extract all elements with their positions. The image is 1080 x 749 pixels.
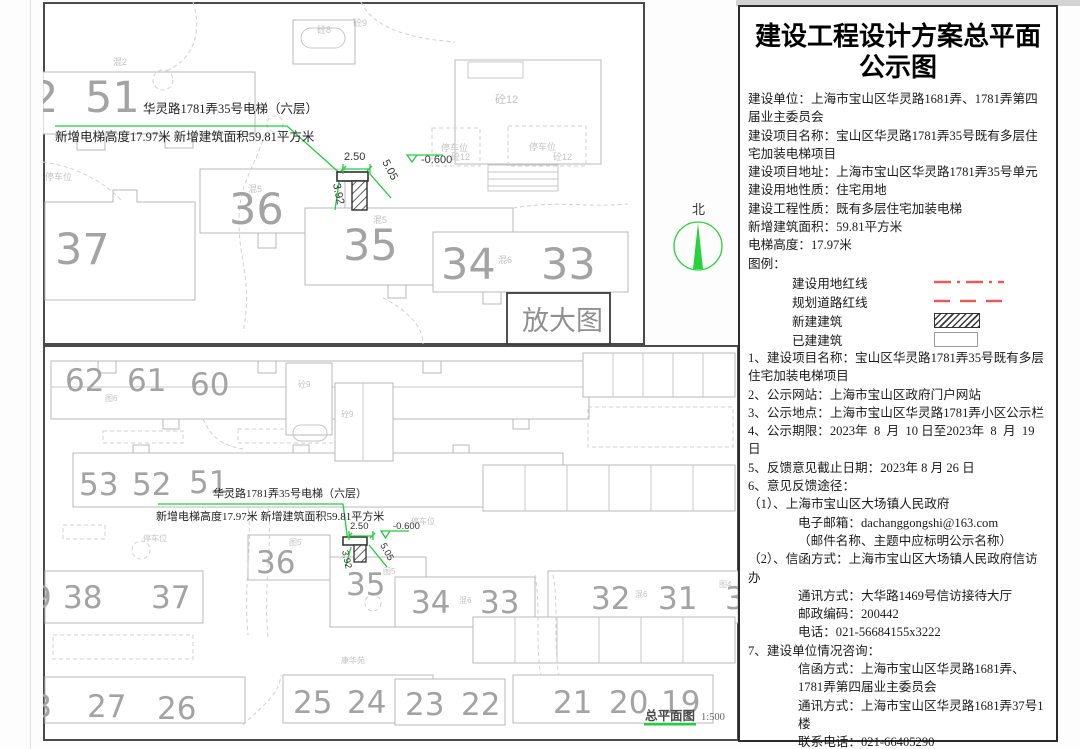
structure-label: 混6 [498,255,512,265]
panel-field-line: 建设用地性质：住宅用地 [748,181,1048,199]
structure-label: 砼9 [353,17,367,28]
building-number: 34 [411,585,450,621]
structure-label: 混2 [113,57,127,67]
panel-note-line: （2）、信函方式：上海市宝山区大场镇人民政府信访办 [748,550,1048,587]
page-title-line2: 公示图 [859,53,937,82]
legend-swatch-road-redline [934,297,1004,305]
panel-note-line: 3、公示地点：上海市宝山区华灵路1781弄小区公示栏 [748,404,1048,422]
annotation-title: 华灵路1781弄35号电梯（六层） [213,486,367,500]
panel-note-line: 4、公示期限：2023年 8 月 10 日至2023年 8 月 19 日 [748,422,1048,459]
panel-note-line: 5、反馈意见截止日期：2023年 8 月 26 日 [748,459,1048,477]
building-number: 61 [127,363,166,399]
building-number: 9 [43,580,52,616]
building-number: 38 [63,580,102,616]
building-number: 37 [55,225,110,275]
legend-row-road-redline: 规划道路红线 [748,292,1048,311]
structure-label: 停车位 [143,533,167,543]
building-number: 2 [43,73,58,123]
panel-field-line: 新增建筑面积：59.81平方米 [748,218,1048,236]
structure-label: 混5 [248,184,262,194]
map-title: 放大图 [522,306,603,336]
building-number: 26 [157,691,196,727]
building-number: 23 [405,687,444,723]
legend-label: 新建建筑 [792,311,900,330]
panel-note-line: （邮件名称、主题中应标明公示名称） [748,532,1048,550]
panel-note-line: 2、公示网站：上海市宝山区政府门户网站 [748,386,1048,404]
elevator-shaft-new [354,545,366,562]
building-number: 32 [591,581,630,617]
map-scale: 1:500 [701,712,725,723]
structure-label: 混5 [373,215,387,225]
annotation-detail: 新增电梯高度17.97米 新增建筑面积59.81平方米 [55,129,315,144]
structure-label: 图4 [719,580,732,589]
building-number: 24 [347,685,386,721]
structure-label: 停车位 [45,171,72,182]
panel-field-line: 建设单位：上海市宝山区华灵路1681弄、1781弄第四届业主委员会 [748,90,1048,127]
elevator-landing [343,537,367,545]
structure-label: 图6 [105,394,118,403]
panel-note-line: 通讯方式：大华路1469号信访接待大厅 [748,587,1048,605]
structure-label: 砼12 [553,151,572,162]
building-number: 33 [480,585,519,621]
panel-note-line: 7、建设单位情况咨询： [748,642,1048,660]
building-number: 34 [441,240,496,290]
building-number: 33 [541,240,596,290]
building-number: 27 [87,689,126,725]
building-number: 20 [609,685,648,721]
building-number: 37 [151,580,190,616]
annotation-title: 华灵路1781弄35号电梯（六层） [143,101,318,116]
structure-label: 图5 [383,567,396,576]
map-title-underline [644,723,696,726]
legend-swatch-land-redline [934,278,1004,286]
structure-label: 砼9 [298,379,311,389]
building-number: 31 [658,581,697,617]
building-number: 8 [43,689,52,725]
panel-field-line: 建设项目名称：宝山区华灵路1781弄35号既有多层住宅加装电梯项目 [748,127,1048,164]
building-number: 36 [256,545,295,581]
panel-note-line: 信函方式：上海市宝山区华灵路1681弄、1781弄第四届业主委员会 [748,660,1048,697]
structure-label: 停车位 [529,141,556,152]
panel-note-line: 邮政编码：200442 [748,605,1048,623]
building-number: 51 [85,73,140,123]
structure-label: 砼12 [495,93,518,106]
elevator-landing [337,172,368,181]
building-number: 35 [343,221,398,271]
structure-label: 混6 [635,590,648,599]
building-number: 52 [132,467,171,503]
building-number: 25 [293,685,332,721]
building-number: 53 [79,467,118,503]
panel-field-line: 电梯高度：17.97米 [748,236,1048,254]
legend-row-land-redline: 建设用地红线 [748,273,1048,292]
scan-margin-line [30,0,31,749]
notice-page: 2 51 36 37 35 34 33 混2 砼8 砼9 砼12 砼12 砼12… [0,0,1080,749]
panel-field-line: 建设工程性质：既有多层住宅加装电梯 [748,200,1048,218]
page-title-line1: 建设工程设计方案总平面 [755,22,1041,51]
structure-label: 砼8 [317,24,331,35]
north-arrow: 北 [666,198,730,278]
legend-swatch-existing-building [934,332,978,347]
elevator-shaft-new [352,181,367,210]
structure-label: 康华苑 [341,655,365,665]
north-needle [693,223,703,269]
level-text: -0.600 [421,154,452,166]
building-number: 22 [461,687,500,723]
structure-label: 砼9 [341,409,354,419]
legend-swatch-new-building [934,313,980,328]
legend-row-new-building: 新建建筑 [748,311,1048,330]
panel-field-line: 建设项目地址：上海市宝山区华灵路1781弄35号单元 [748,163,1048,181]
north-label: 北 [692,202,705,217]
enlarged-plan-map: 2 51 36 37 35 34 33 混2 砼8 砼9 砼12 砼12 砼12… [43,2,645,345]
building-number: 35 [346,567,385,603]
legend-label: 规划道路红线 [792,292,900,311]
panel-note-line: 1、建设项目名称：宝山区华灵路1781弄35号既有多层住宅加装电梯项目 [748,349,1048,386]
map-title: 总平面图 [645,708,695,723]
panel-note-line: 联系电话：021-66405290 [748,733,1048,749]
panel-note-line: 电话：021-56684155x3222 [748,623,1048,641]
notice-panel: 建设工程设计方案总平面公示图 建设单位：上海市宝山区华灵路1681弄、1781弄… [738,5,1058,742]
building-number: 21 [553,685,592,721]
legend-row-existing-building: 已建建筑 [748,330,1048,349]
dimension-text: 2.50 [350,521,369,532]
panel-note-line: （1）、上海市宝山区大场镇人民政府 [748,495,1048,513]
legend-label: 已建建筑 [792,330,900,349]
building-number: 60 [190,367,229,403]
structure-label: 停车位 [441,142,468,153]
panel-note-line: 通讯方式：上海市宝山区华灵路1681弄37号1楼 [748,697,1048,734]
enlarged-map-titlebox: 放大图 [507,293,610,344]
legend-label: 建设用地红线 [792,273,900,292]
panel-field-line: 图例： [748,255,1048,273]
structure-label: 图5 [289,538,302,547]
site-plan-map: 62 61 60 53 52 51 9 38 37 36 35 34 33 32… [43,345,739,741]
panel-note-line: 电子邮箱：dachanggongshi@163.com [748,514,1048,532]
page-title: 建设工程设计方案总平面公示图 [748,21,1048,83]
dimension-text: 2.50 [344,151,365,163]
level-text: -0.600 [393,521,420,532]
panel-note-line: 6、意见反馈途径： [748,477,1048,495]
building-number: 62 [65,363,104,399]
structure-label: 混6 [459,596,472,605]
